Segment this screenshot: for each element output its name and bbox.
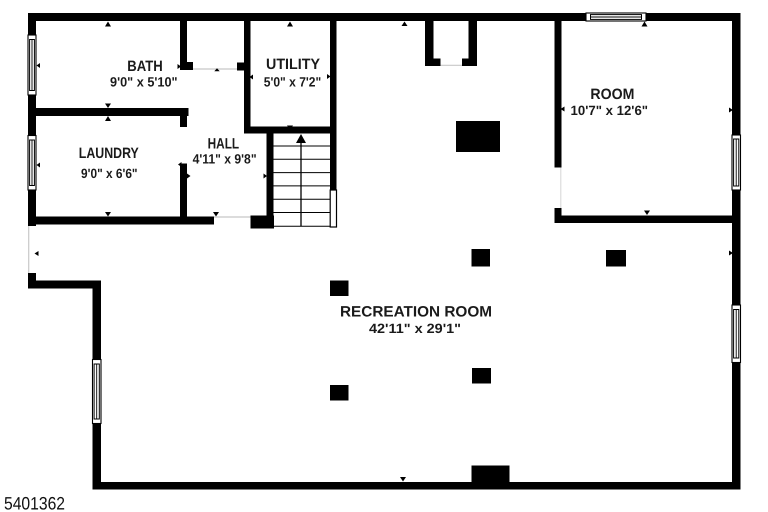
svg-text:BATH: BATH: [127, 58, 163, 75]
svg-text:ROOM: ROOM: [590, 86, 634, 103]
svg-text:LAUNDRY: LAUNDRY: [79, 145, 139, 162]
svg-text:RECREATION ROOM: RECREATION ROOM: [340, 304, 492, 321]
svg-text:10'7" x 12'6": 10'7" x 12'6": [571, 103, 649, 118]
svg-text:HALL: HALL: [208, 136, 240, 153]
svg-text:UTILITY: UTILITY: [266, 56, 320, 73]
svg-text:5401362: 5401362: [4, 494, 65, 512]
svg-text:4'11" x 9'8": 4'11" x 9'8": [193, 152, 257, 167]
svg-text:42'11" x 29'1": 42'11" x 29'1": [369, 321, 461, 336]
svg-text:9'0" x 6'6": 9'0" x 6'6": [81, 166, 138, 181]
svg-text:9'0" x 5'10": 9'0" x 5'10": [110, 75, 178, 90]
svg-text:5'0" x 7'2": 5'0" x 7'2": [264, 75, 322, 90]
